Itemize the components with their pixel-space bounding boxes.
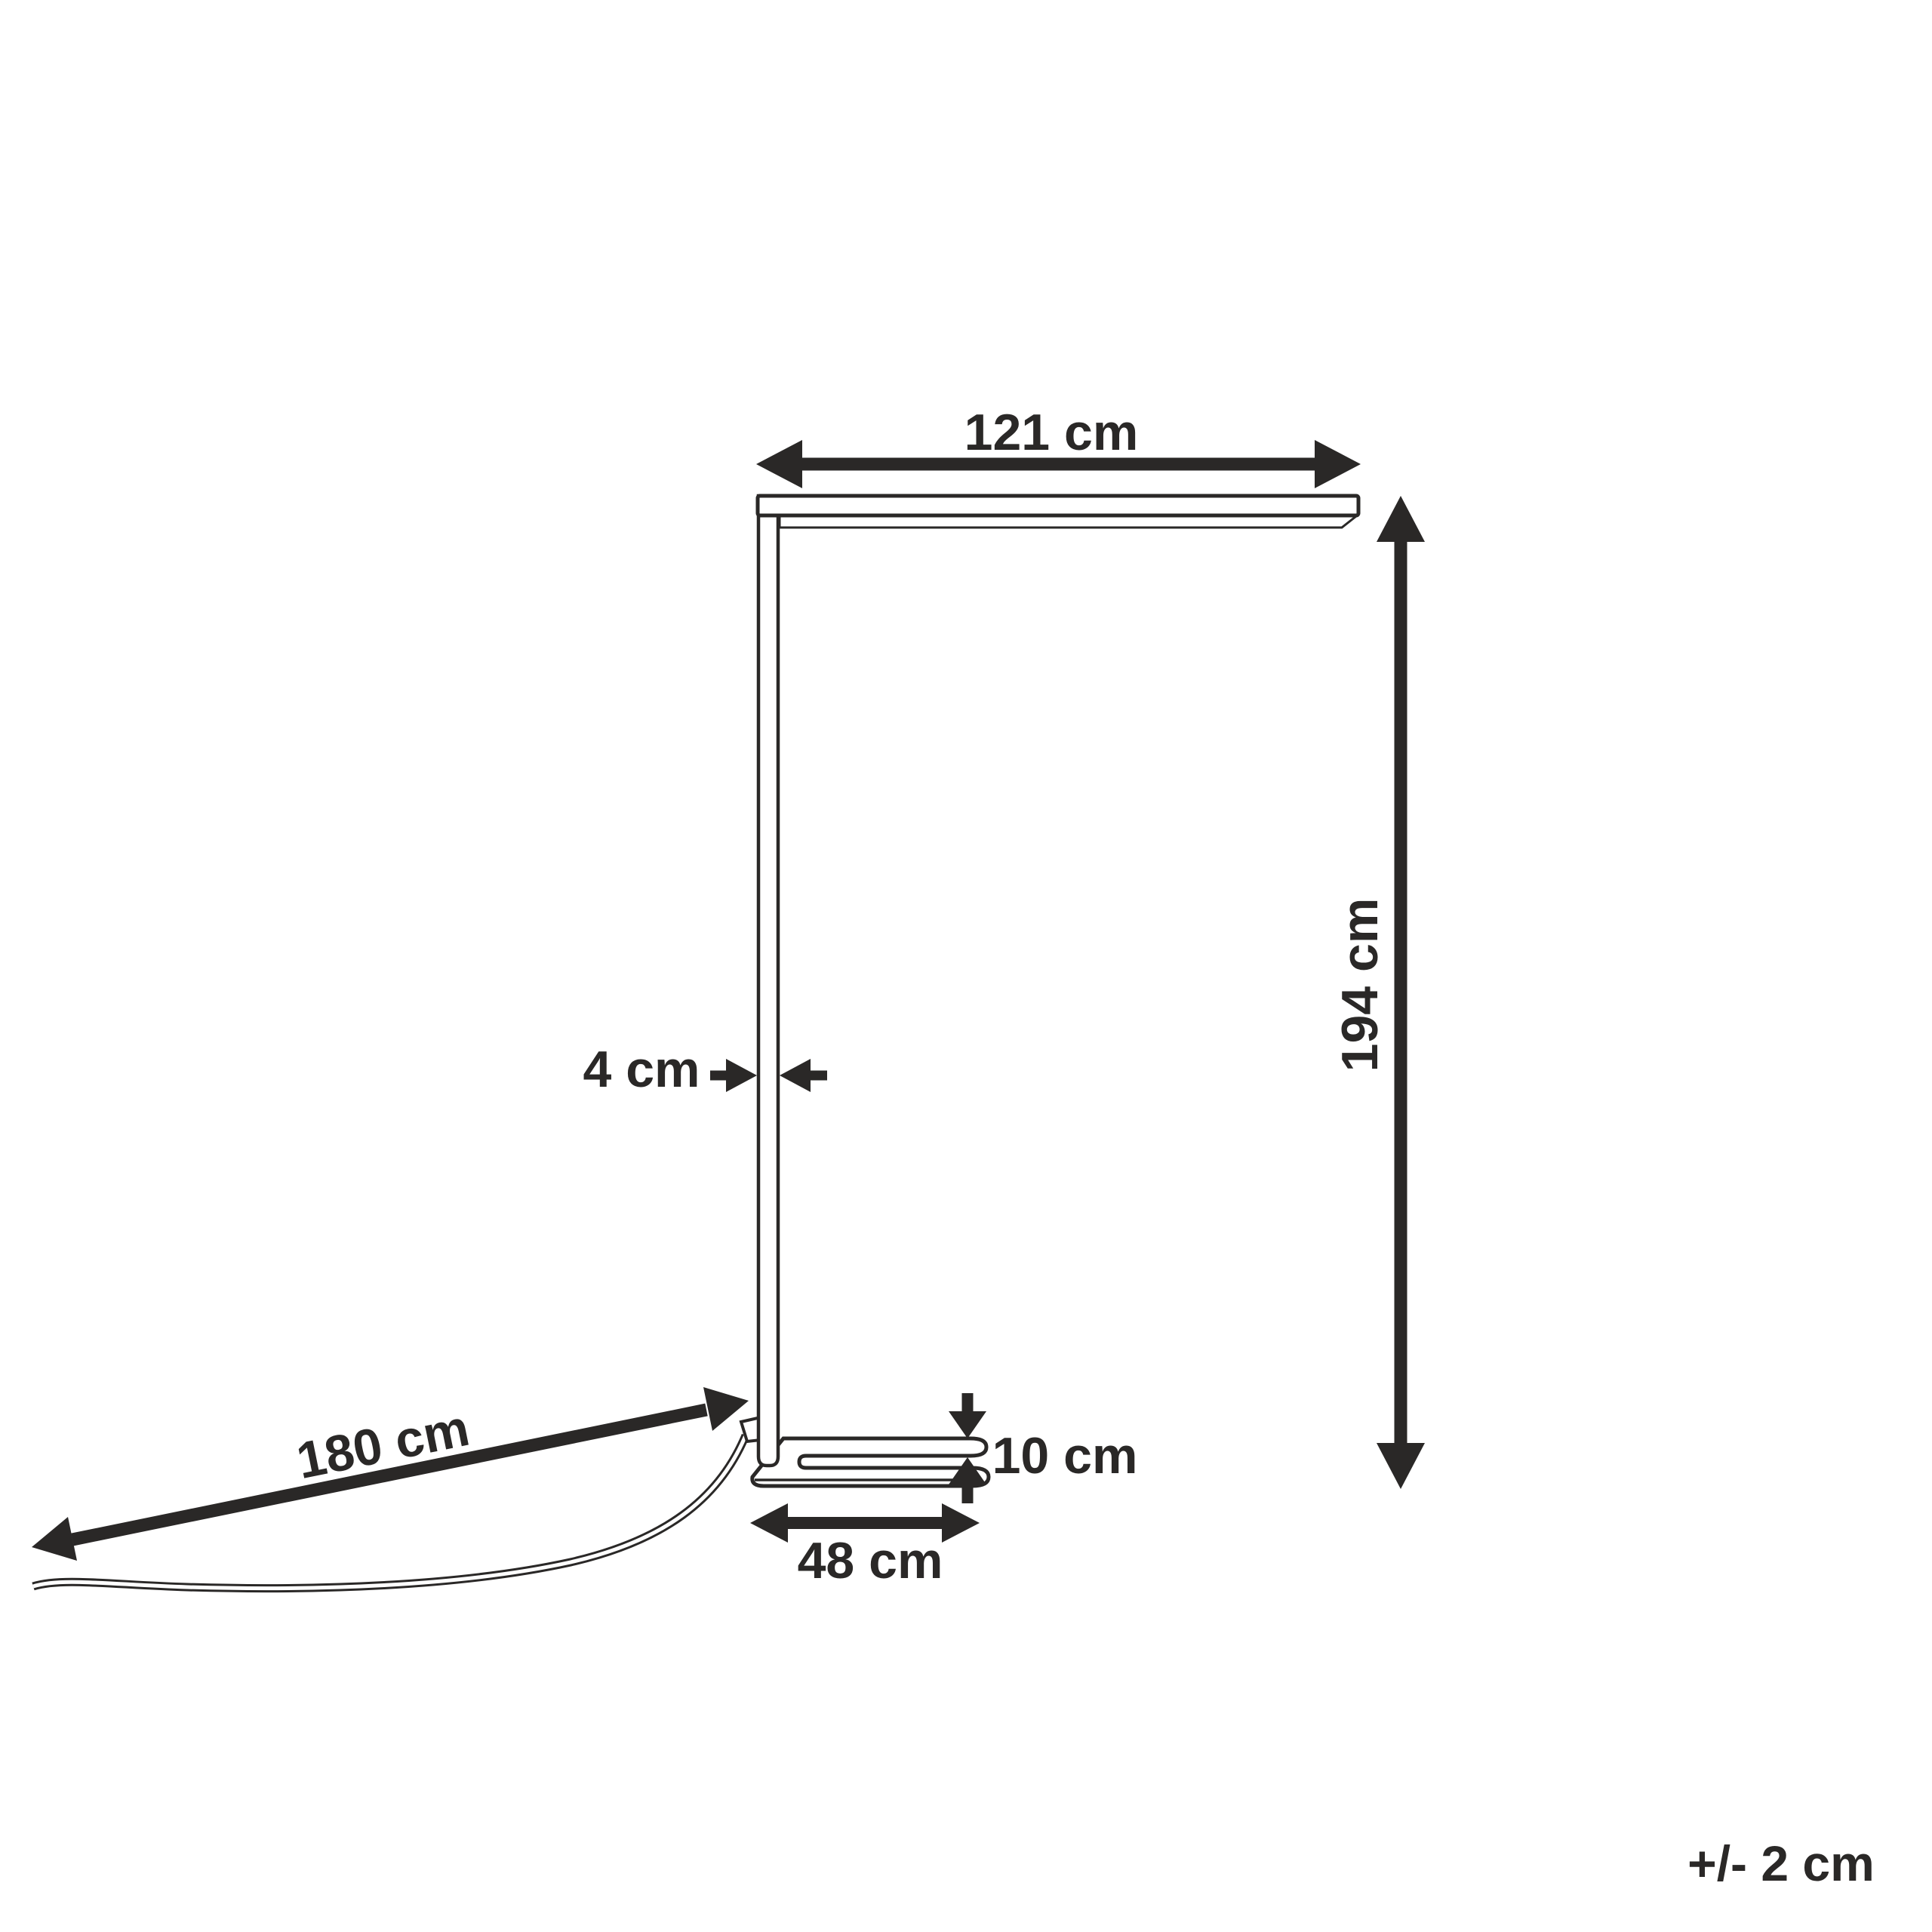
base-height-arrowhead-down — [949, 1411, 986, 1438]
head-width-arrowhead-left — [756, 440, 802, 488]
lamp-pole — [758, 496, 778, 1466]
base-depth-arrowhead-left — [750, 1503, 788, 1543]
dimension-base-depth: 48 cm — [750, 1503, 980, 1589]
dimension-head-width: 121 cm — [756, 404, 1361, 488]
lamp-height-label: 194 cm — [1331, 898, 1389, 1072]
pole-width-label: 4 cm — [583, 1041, 700, 1098]
base-depth-arrowhead-right — [942, 1503, 980, 1543]
dimension-diagram: 121 cm 194 cm 4 cm 10 cm — [0, 0, 1932, 1932]
lamp-height-arrowhead-bottom — [1377, 1443, 1425, 1489]
lamp-head-bar — [758, 496, 1358, 515]
lamp-height-arrowhead-top — [1377, 496, 1425, 542]
base-depth-label: 48 cm — [798, 1532, 943, 1589]
tolerance-note: +/- 2 cm — [1687, 1835, 1875, 1891]
head-width-arrowhead-right — [1315, 440, 1361, 488]
pole-width-arrowhead-right — [780, 1059, 811, 1092]
pole-width-arrowhead-left — [726, 1059, 757, 1092]
lamp-head-understrip — [780, 516, 1356, 528]
head-width-label: 121 cm — [964, 404, 1139, 461]
cable-length-arrowhead-left — [32, 1517, 77, 1561]
base-height-label: 10 cm — [992, 1427, 1138, 1484]
dimension-pole-width: 4 cm — [583, 1041, 828, 1098]
dimension-lamp-height: 194 cm — [1331, 496, 1425, 1489]
